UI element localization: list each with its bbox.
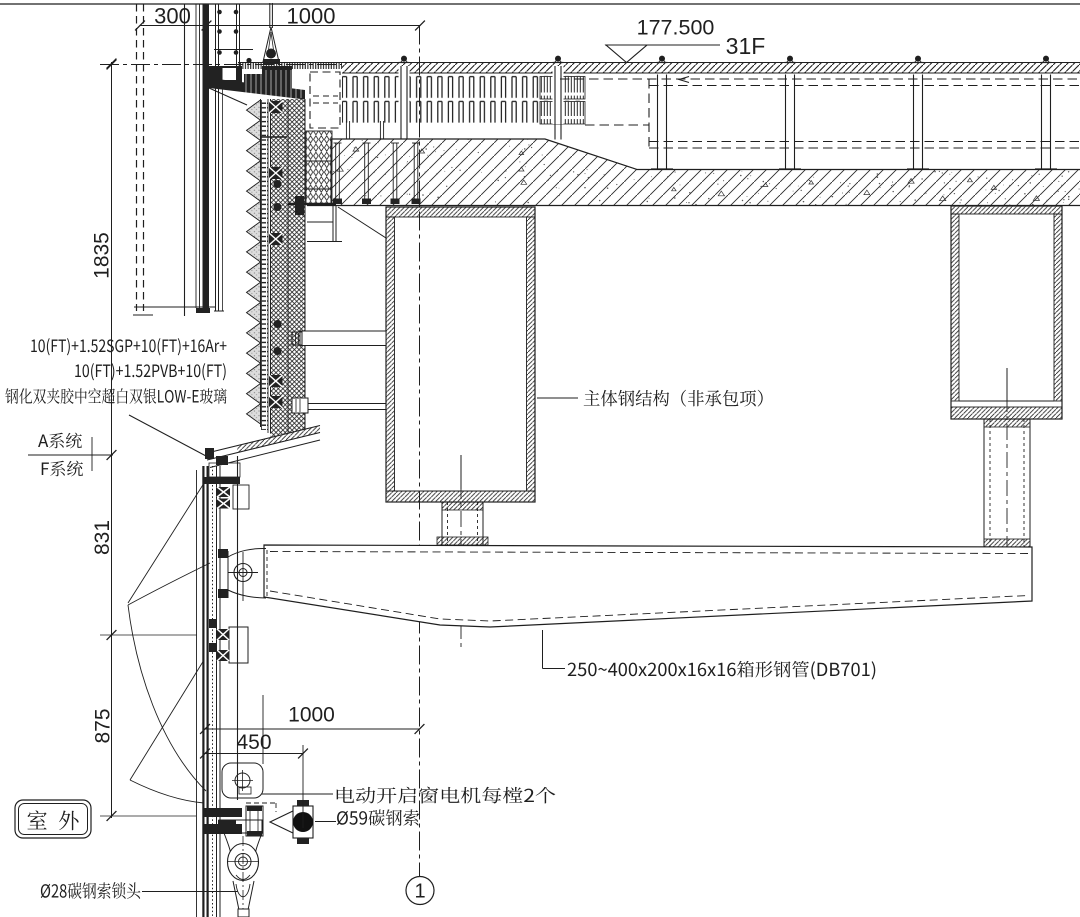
svg-text:1: 1 [414, 881, 425, 903]
svg-text:1000: 1000 [288, 704, 335, 727]
svg-text:831: 831 [91, 520, 114, 555]
svg-text:1000: 1000 [287, 4, 336, 29]
svg-text:177.500: 177.500 [637, 16, 715, 40]
svg-text:450: 450 [236, 731, 271, 754]
svg-text:1835: 1835 [91, 232, 114, 279]
svg-text:875: 875 [92, 708, 115, 743]
svg-text:31F: 31F [726, 33, 766, 59]
svg-text:300: 300 [154, 4, 191, 29]
